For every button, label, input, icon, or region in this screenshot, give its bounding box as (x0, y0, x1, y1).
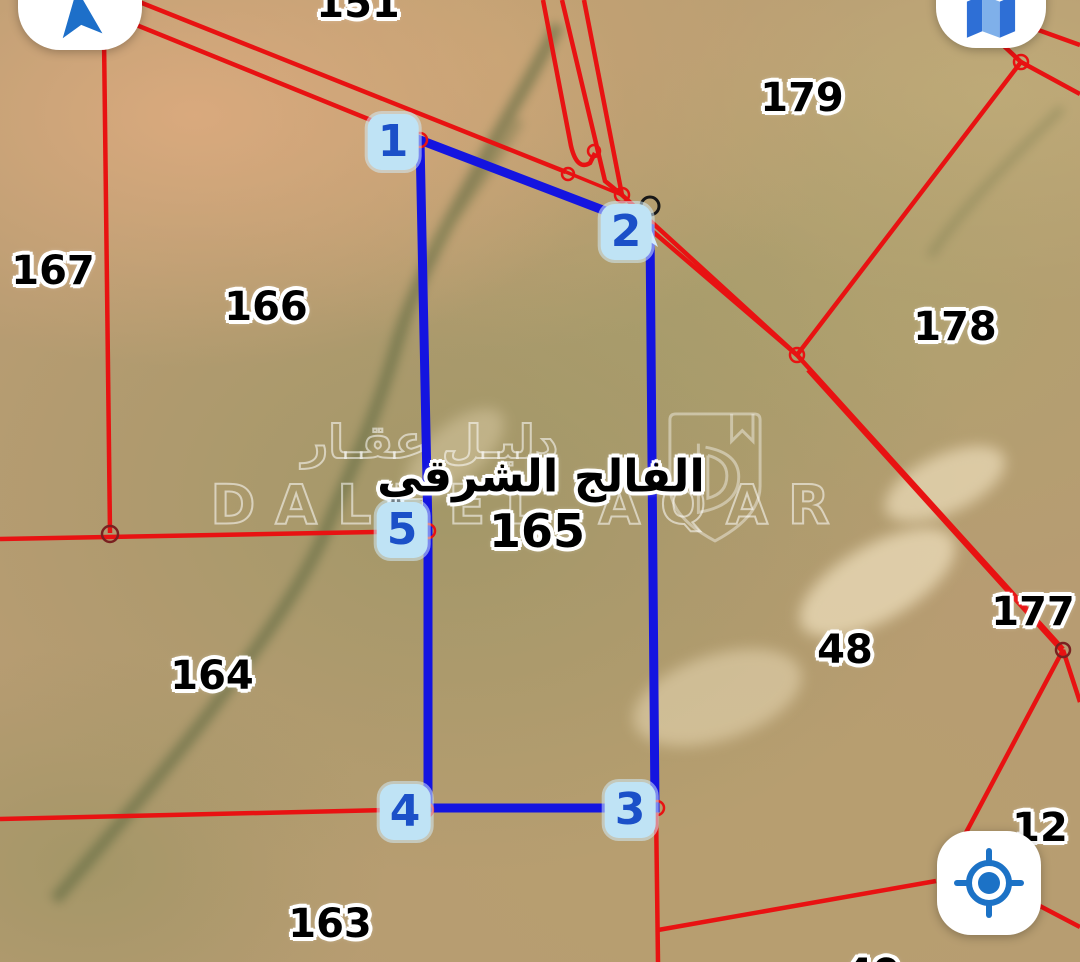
place-name-label: الفالج الشرقي (377, 454, 705, 499)
vertex-badge-3: 3 (605, 782, 656, 838)
parcel-label-177: 177 (991, 592, 1075, 632)
parcel-label-49: 49 (845, 954, 901, 962)
parcel-label-164: 164 (170, 656, 254, 696)
vertex-badge-5: 5 (377, 502, 428, 558)
parcel-label-163: 163 (288, 904, 372, 944)
parcel-label-167: 167 (11, 251, 95, 291)
parcel-label-151: 151 (316, 0, 400, 24)
vertex-badge-1: 1 (368, 114, 419, 170)
navigation-arrow-icon (51, 0, 110, 47)
parcel-label-179: 179 (760, 78, 844, 118)
place-number-label: 165 (489, 508, 585, 554)
my-location-button[interactable] (937, 831, 1041, 935)
parcel-label-178: 178 (913, 307, 997, 347)
map-icon (963, 0, 1019, 40)
map-canvas[interactable]: دليـل عقـار DALEEL AQAR (0, 0, 1080, 962)
parcel-label-166: 166 (224, 287, 308, 327)
vertex-badge-2: 2 (601, 204, 652, 260)
compass-button[interactable] (18, 0, 142, 50)
vertex-badge-4: 4 (380, 784, 431, 840)
my-location-crosshair-icon (953, 847, 1025, 919)
parcel-label-48: 48 (817, 630, 873, 670)
